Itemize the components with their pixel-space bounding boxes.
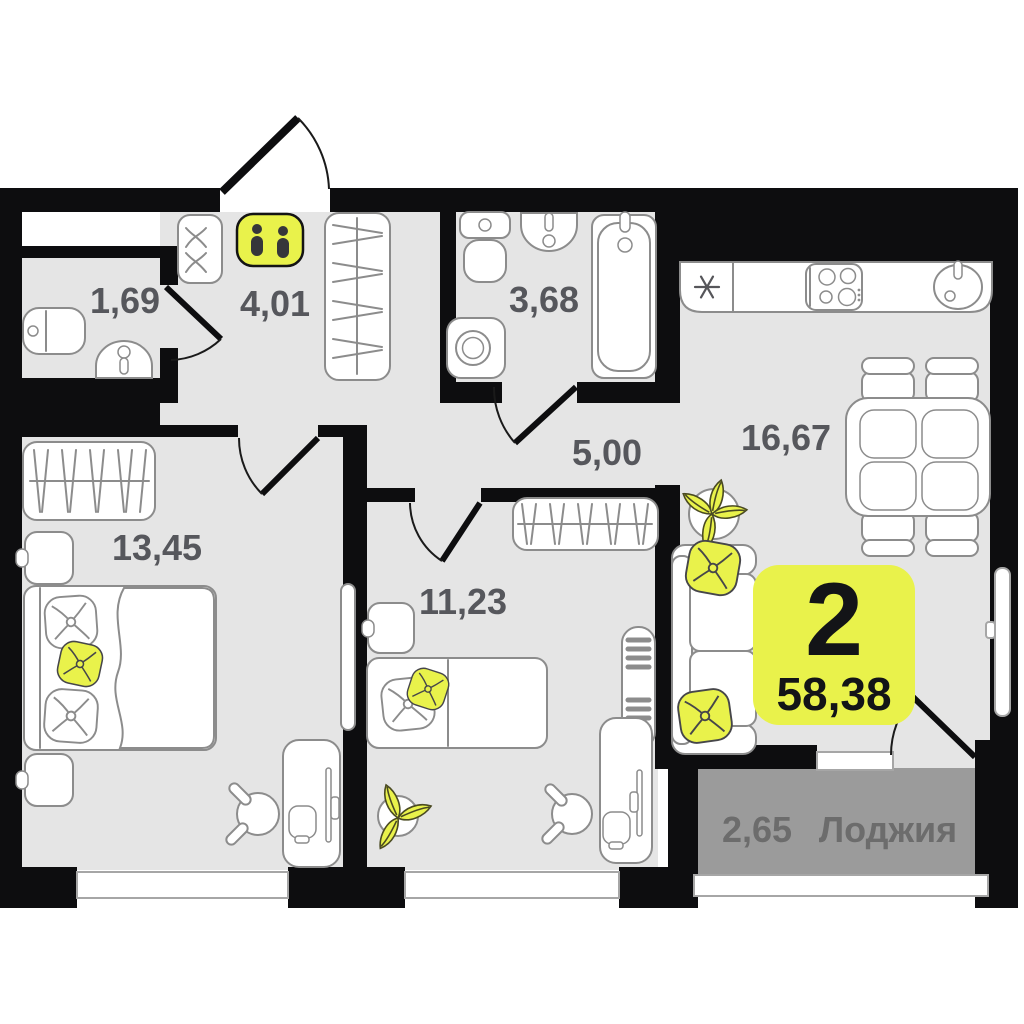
sofa-pillow [683,538,742,597]
apartment-badge: 2 58,38 [753,562,915,725]
entrance-door-arc [298,118,329,189]
room-area-label-corridor: 5,00 [572,432,642,473]
blanket [115,588,214,748]
dining-chair [862,512,914,556]
floor-plan-page: 1,69 4,01 3,68 5,00 16,67 13,45 11,23 2,… [0,0,1024,1024]
sofa-pillow [676,687,734,745]
window-bedroom-2 [405,872,619,898]
loggia-area-label: 2,65 [722,809,792,850]
entrance-door-leaf [222,118,298,192]
dining-table [846,398,990,516]
dining-chair [926,512,978,556]
dining-chair [862,358,914,402]
room-area-label-bedroom-2: 11,23 [419,581,507,622]
room-area-label-kitchen-living: 16,67 [741,417,831,458]
loggia-name-label: Лоджия [819,809,957,850]
apartment-floor-plan: 1,69 4,01 3,68 5,00 16,67 13,45 11,23 2,… [0,0,1024,1024]
badge-total-area: 58,38 [776,668,891,720]
room-area-label-bathroom: 3,68 [509,279,579,320]
room-area-label-hallway: 4,01 [240,283,310,324]
badge-room-count: 2 [805,562,863,678]
open-door-panel [341,584,355,730]
window-living-to-loggia [817,752,893,770]
window-loggia [694,875,988,896]
bathroom-toilet [460,212,510,282]
bed-pillow [43,688,99,744]
room-area-label-wc: 1,69 [90,280,160,321]
shoe-cabinet [178,215,222,283]
stove [806,264,862,310]
dining-chair [926,358,978,402]
window-bedroom-1 [77,872,288,898]
bedroom-1-wardrobe [23,442,155,520]
room-area-label-bedroom-1: 13,45 [112,527,202,568]
laptop [603,812,630,844]
wc-toilet [23,308,85,354]
laptop [289,806,316,838]
washing-machine [447,318,505,378]
footprints-icon [237,214,303,266]
hall-wardrobe [325,213,390,380]
desk [283,740,340,867]
window-kitchen-side [995,568,1010,716]
window-handle [986,622,995,638]
desk [600,718,652,863]
door-entrance [222,118,329,192]
bedroom-2-wardrobe [513,498,658,550]
nightstand [362,603,414,653]
bathtub [592,212,656,378]
